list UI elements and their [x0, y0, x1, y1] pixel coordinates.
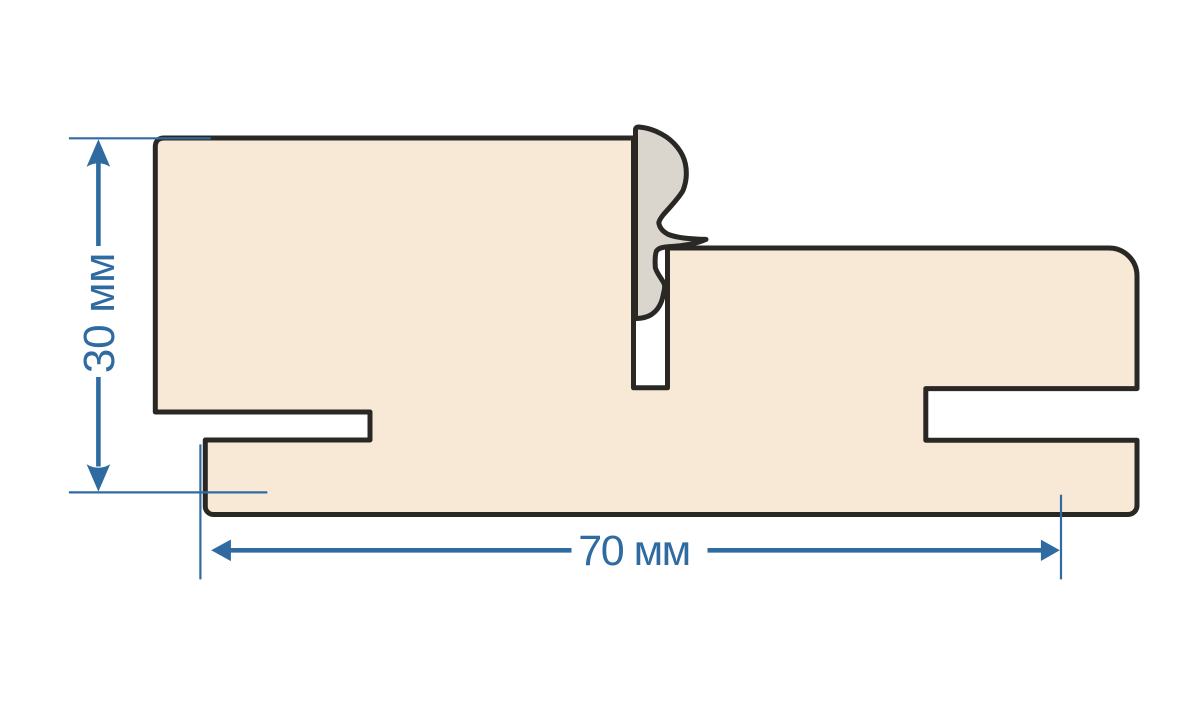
svg-text:30 мм: 30 мм — [75, 253, 124, 373]
svg-text:70 мм: 70 мм — [578, 527, 689, 575]
